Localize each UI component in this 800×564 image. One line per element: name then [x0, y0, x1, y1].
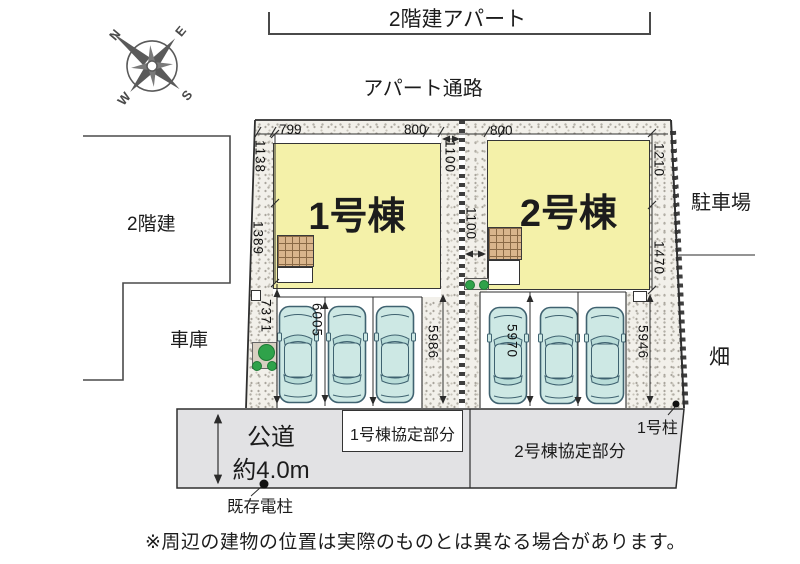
- dim-5946: 5946: [636, 325, 650, 359]
- dim-1100a: 1100: [443, 140, 457, 173]
- dim-1470: 1470: [652, 241, 666, 275]
- dim-1100b: 1100: [464, 207, 478, 240]
- dim-1138: 1138: [253, 140, 267, 173]
- dim-800b: 800: [490, 124, 513, 138]
- dim-5970: 5970: [505, 324, 519, 358]
- dim-799: 799: [279, 123, 302, 137]
- car-icon: [585, 308, 626, 404]
- car-icon: [327, 307, 368, 403]
- dim-800a: 800: [404, 123, 427, 137]
- car-icon: [375, 307, 416, 403]
- dim-1210: 1210: [652, 143, 666, 177]
- cars-layer: [0, 0, 800, 564]
- dim-1389: 1389: [251, 221, 265, 255]
- dim-7371: 7371: [259, 299, 273, 333]
- car-icon: [539, 308, 580, 404]
- dim-5986: 5986: [426, 325, 440, 359]
- site-plan: 2階建アパート アパート通路: [0, 0, 800, 564]
- disclaimer: ※周辺の建物の位置は実際のものとは異なる場合があります。: [145, 527, 686, 554]
- dim-6005: 6005: [310, 303, 324, 337]
